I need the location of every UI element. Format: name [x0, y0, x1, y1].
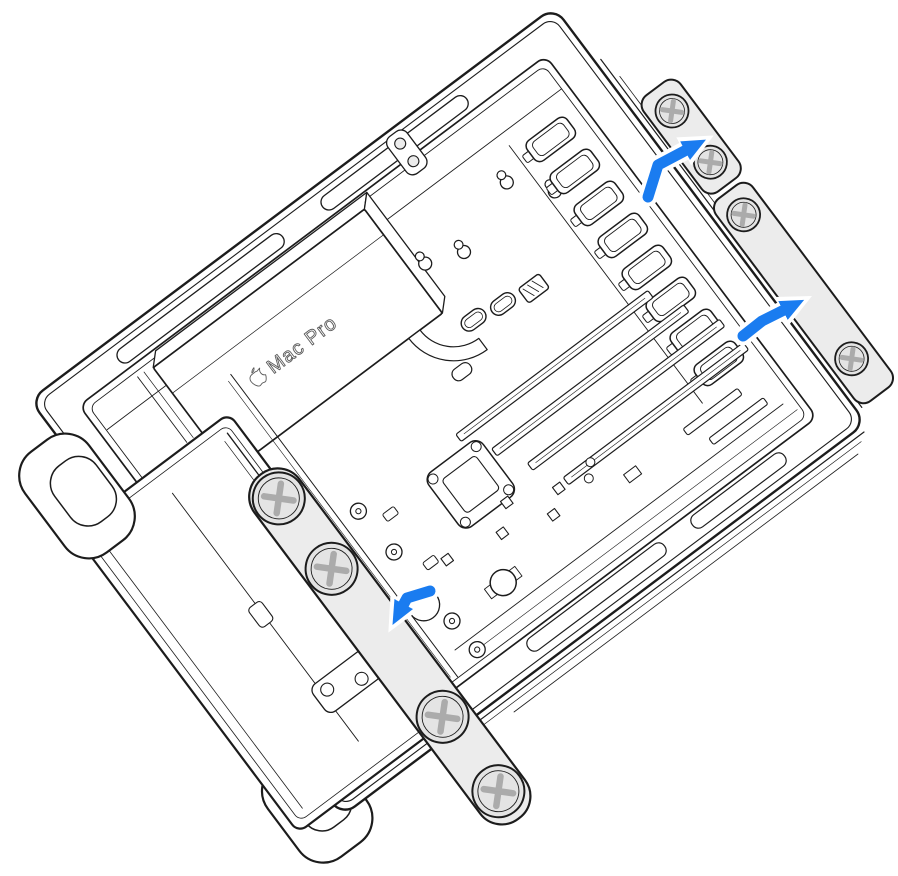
mac-pro-illustration: Mac Pro	[0, 0, 898, 876]
mac-pro-machine: Mac Pro	[0, 0, 898, 876]
illustration-svg: Mac Pro	[0, 0, 898, 876]
